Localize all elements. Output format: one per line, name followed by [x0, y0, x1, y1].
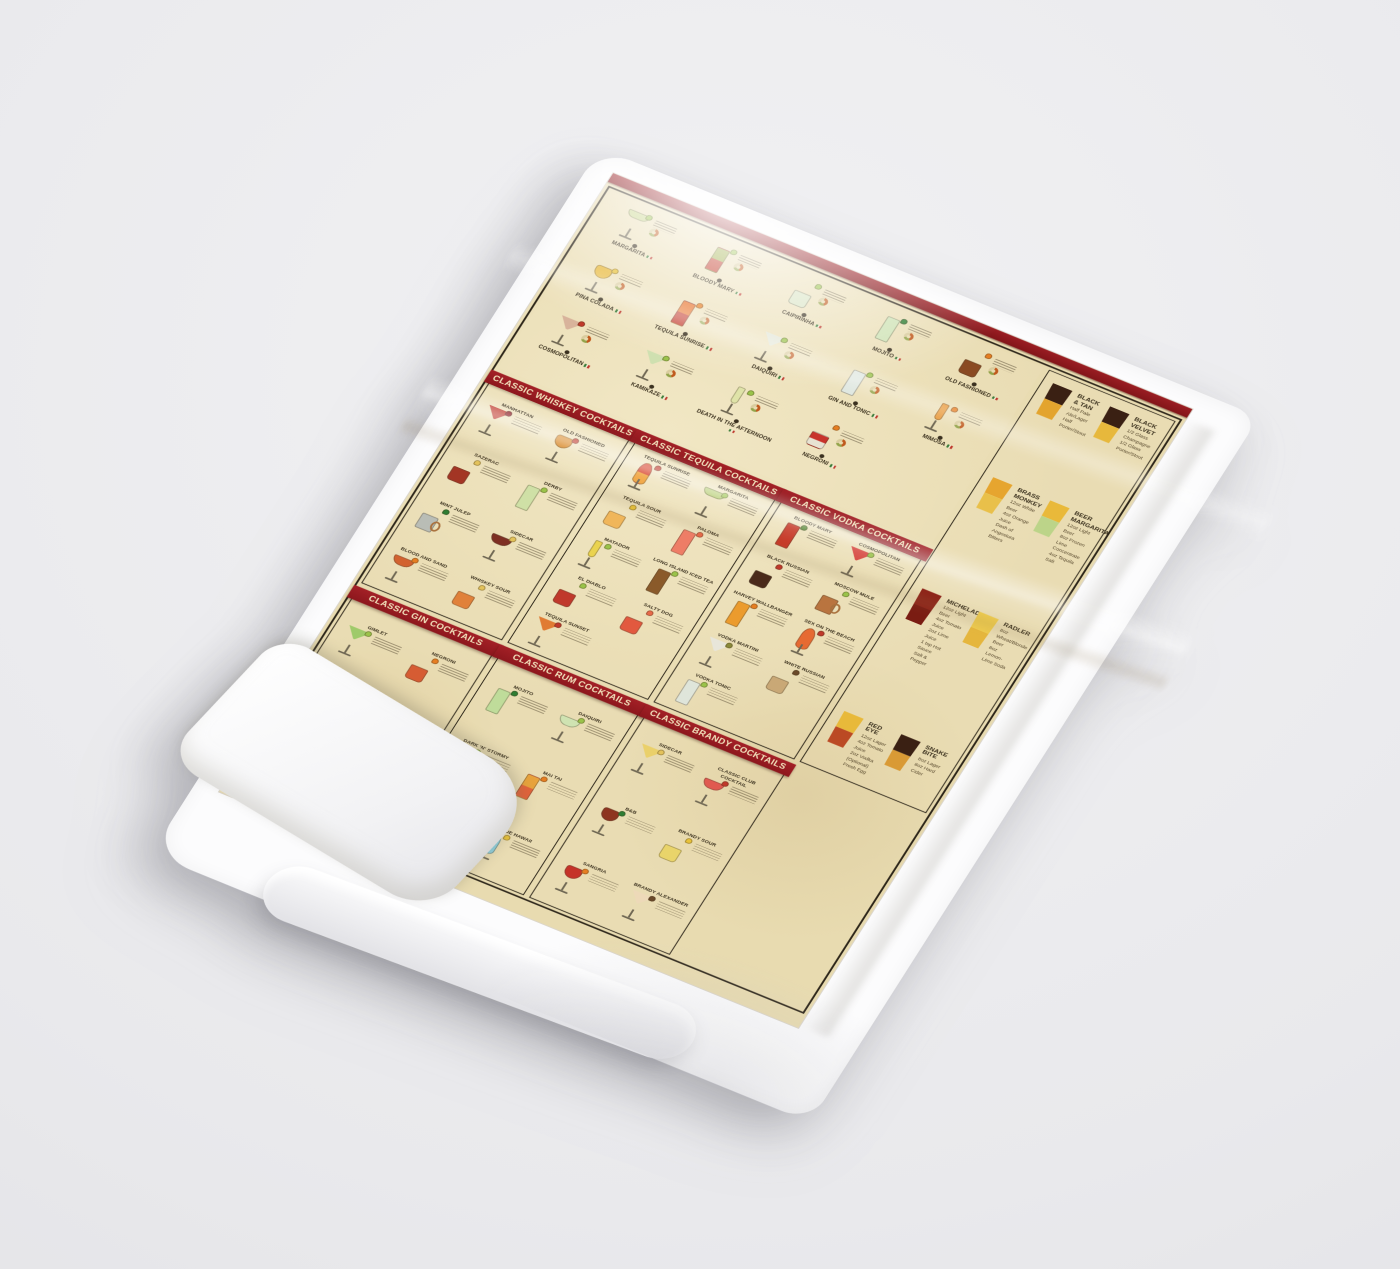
- cocktail-card: DAIQUIRI: [540, 703, 623, 760]
- ingredient-lines: [515, 541, 547, 560]
- product-photo-scene: { "scene": { "description": "White tea t…: [0, 0, 1400, 1269]
- cocktail-card: WHISKEY SOUR: [440, 570, 523, 627]
- drink-liquid: [804, 431, 829, 451]
- drink-liquid: [586, 540, 603, 559]
- drink-liquid: [670, 529, 697, 556]
- ingredient-lines: [610, 549, 642, 568]
- origin-flag-icon: [705, 346, 712, 351]
- cocktail-card: BRANDY ALEXANDER: [610, 881, 693, 938]
- origin-flag-icon: [946, 444, 953, 449]
- drink-liquid: [933, 402, 950, 421]
- ingredient-lines: [437, 663, 469, 682]
- garnish-icon: [814, 283, 823, 291]
- origin-flag-icon: [871, 414, 878, 419]
- drink-liquid: [631, 461, 656, 486]
- origin-flag-icon: [829, 464, 836, 469]
- ingredient-lines: [585, 589, 617, 608]
- origin-flag-icon: [728, 429, 735, 434]
- garnish-icon: [841, 591, 850, 599]
- drink-liquid: [446, 465, 471, 485]
- cocktail-card: MINT JULEP: [405, 494, 488, 551]
- ingredient-lines: [727, 498, 759, 517]
- drink-liquid: [957, 359, 982, 379]
- drink-liquid: [514, 773, 541, 800]
- ingredient-lines: [508, 840, 540, 859]
- ingredient-lines: [706, 687, 738, 706]
- ingredient-lines: [848, 597, 880, 616]
- drink-liquid: [704, 246, 731, 273]
- ingredient-lines: [371, 636, 403, 655]
- ingredient-lines: [588, 874, 620, 893]
- ingredient-lines: [806, 531, 838, 550]
- cocktail-card: MANHATTAN: [467, 396, 550, 453]
- cocktail-card: GIMLET: [327, 616, 410, 673]
- ingredient-lines: [798, 675, 830, 694]
- drink-liquid: [450, 591, 475, 611]
- drink-liquid: [552, 589, 577, 609]
- origin-flag-icon: [661, 395, 668, 400]
- drink-liquid: [403, 664, 428, 684]
- cocktail-card: SIDECAR: [471, 521, 554, 578]
- drink-liquid: [764, 675, 789, 695]
- garnish-icon: [477, 584, 486, 592]
- drink-liquid: [670, 300, 697, 327]
- cocktail-card: OLD FASHIONED: [534, 423, 617, 480]
- garnish-icon: [684, 837, 693, 845]
- cocktail-card: SANGRIA: [544, 853, 627, 910]
- cocktail-card: NEGRONI: [393, 643, 476, 700]
- garnish-icon: [984, 352, 993, 360]
- ingredient-lines: [691, 843, 723, 862]
- drink-liquid: [787, 290, 812, 310]
- garnish-icon: [571, 437, 580, 445]
- drink-liquid: [748, 570, 773, 590]
- drink-liquid: [514, 484, 541, 511]
- perspective-wrapper: MARGARITABLOODY MARYCAIPIRINHAMOJITOOLD …: [0, 0, 1400, 1269]
- drink-liquid: [874, 316, 901, 343]
- ingredient-lines: [511, 416, 543, 435]
- cocktail-card: SAZERAC: [436, 445, 519, 502]
- ingredient-lines: [480, 465, 512, 484]
- garnish-icon: [577, 321, 586, 329]
- cocktail-card: DERBY: [502, 472, 585, 529]
- origin-flag-icon: [735, 291, 742, 296]
- cocktail-card: MOJITO: [473, 676, 556, 733]
- origin-flag-icon: [615, 309, 622, 314]
- origin-flag-icon: [894, 356, 901, 361]
- garnish-icon: [695, 531, 704, 539]
- cocktail-card: BLOOD AND SAND: [374, 543, 457, 600]
- ingredient-lines: [448, 514, 480, 533]
- garnish-icon: [539, 776, 548, 784]
- drink-liquid: [725, 601, 752, 628]
- ingredient-lines: [663, 755, 695, 774]
- garnish-icon: [670, 570, 679, 578]
- highball-glass-icon: [696, 241, 739, 278]
- garnish-icon: [729, 249, 738, 257]
- garnish-icon: [866, 551, 875, 559]
- origin-flag-icon: [778, 376, 785, 381]
- drink-liquid: [675, 679, 702, 706]
- ingredient-lines: [652, 616, 684, 635]
- ingredient-lines: [546, 782, 578, 801]
- origin-flag-icon: [584, 364, 591, 369]
- drink-liquid: [840, 369, 867, 396]
- cocktail-card: BRANDY SOUR: [647, 823, 730, 880]
- drink-liquid: [793, 626, 818, 651]
- poster-grid: MARGARITABLOODY MARYCAIPIRINHAMOJITOOLD …: [230, 186, 1182, 1014]
- ingredient-lines: [546, 492, 578, 511]
- garnish-icon: [645, 609, 654, 617]
- tea-towel: MARGARITABLOODY MARYCAIPIRINHAMOJITOOLD …: [151, 148, 1260, 1122]
- garnish-icon: [831, 424, 840, 432]
- drink-liquid: [774, 522, 801, 549]
- drink-liquid: [657, 844, 682, 864]
- wine-glass-icon: [584, 803, 627, 840]
- drink-liquid: [602, 510, 627, 530]
- garnish-icon: [662, 355, 671, 363]
- ingredient-lines: [624, 816, 656, 835]
- rocks-glass-icon: [951, 345, 994, 382]
- drink-liquid: [485, 688, 512, 715]
- origin-flag-icon: [646, 255, 653, 260]
- drink-liquid: [618, 616, 643, 636]
- garnish-icon: [791, 669, 800, 677]
- drink-liquid: [645, 568, 672, 595]
- ingredient-lines: [583, 723, 615, 742]
- ingredient-lines: [635, 510, 667, 529]
- ingredient-lines: [517, 696, 549, 715]
- drink-liquid: [729, 386, 746, 405]
- ingredient-lines: [702, 537, 734, 556]
- garnish-icon: [618, 810, 627, 818]
- garnish-icon: [899, 318, 908, 326]
- cocktail-card: B&B: [581, 796, 664, 853]
- highball-glass-icon: [866, 311, 909, 348]
- ingredient-lines: [484, 590, 516, 609]
- rocks-glass-icon: [781, 276, 824, 313]
- garnish-icon: [746, 390, 755, 398]
- garnish-icon: [816, 630, 825, 638]
- margarita-glass-icon: [611, 207, 654, 244]
- origin-flag-icon: [815, 324, 822, 329]
- origin-flag-icon: [991, 396, 998, 401]
